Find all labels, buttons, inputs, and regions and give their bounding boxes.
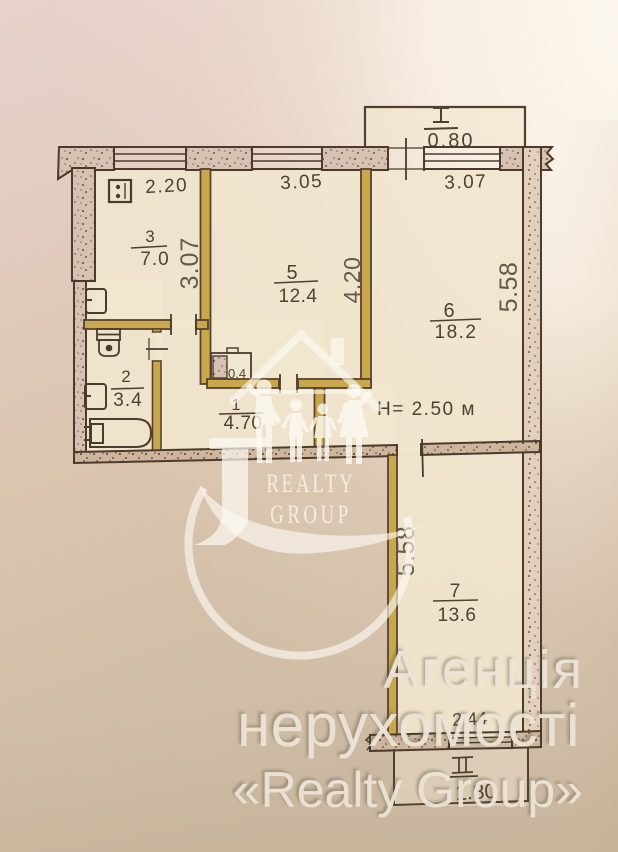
svg-text:3.05: 3.05 xyxy=(280,171,324,194)
svg-text:H= 2.50 м: H= 2.50 м xyxy=(377,399,476,420)
svg-text:GROUP: GROUP xyxy=(270,500,351,529)
svg-text:5: 5 xyxy=(286,262,297,284)
svg-text:5.58: 5.58 xyxy=(495,262,523,313)
svg-text:6: 6 xyxy=(443,300,454,322)
svg-text:Агенція: Агенція xyxy=(383,640,584,700)
svg-text:13.6: 13.6 xyxy=(438,605,477,626)
svg-text:3.4: 3.4 xyxy=(113,390,142,411)
svg-text:7: 7 xyxy=(450,581,461,602)
svg-text:3.07: 3.07 xyxy=(176,237,204,290)
svg-text:«Realty Group»: «Realty Group» xyxy=(233,762,583,818)
svg-text:3.07: 3.07 xyxy=(444,171,488,193)
svg-text:3: 3 xyxy=(145,227,154,246)
svg-text:REALTY: REALTY xyxy=(266,469,355,498)
svg-text:нерухомості: нерухомості xyxy=(237,692,580,759)
svg-text:18.2: 18.2 xyxy=(435,322,478,343)
svg-text:4.20: 4.20 xyxy=(339,257,365,304)
svg-text:7.0: 7.0 xyxy=(140,249,169,270)
svg-text:2: 2 xyxy=(121,367,130,386)
svg-text:0.80: 0.80 xyxy=(428,130,475,152)
svg-text:2.20: 2.20 xyxy=(145,175,189,198)
svg-text:12.4: 12.4 xyxy=(279,286,318,307)
